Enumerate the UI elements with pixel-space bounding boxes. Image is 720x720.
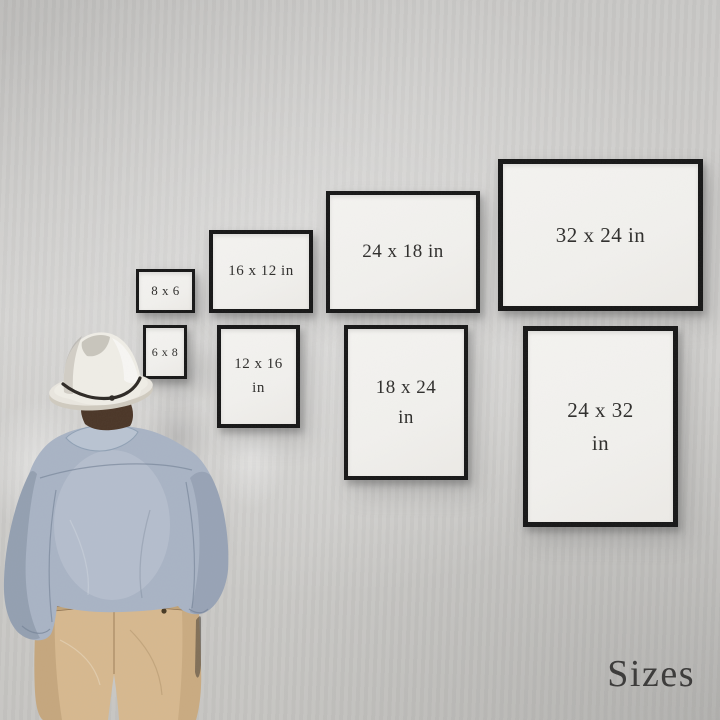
fedora-hat — [48, 332, 155, 414]
frame-size-label: 24 x 32 in — [567, 394, 634, 459]
hat-band-knot — [109, 395, 115, 401]
gallery-wall-scene: 8 x 6 16 x 12 in 24 x 18 in 32 x 24 in 6… — [0, 0, 720, 720]
sizes-caption: Sizes — [607, 652, 695, 696]
frame-24x18: 24 x 18 in — [326, 191, 480, 313]
pocket-button — [161, 608, 166, 613]
hip-shadow — [195, 616, 201, 677]
frame-size-label: 16 x 12 in — [228, 260, 293, 283]
frame-32x24: 32 x 24 in — [498, 159, 703, 311]
frame-18x24: 18 x 24 in — [344, 325, 468, 480]
man-figure — [0, 320, 242, 720]
frame-8x6: 8 x 6 — [136, 269, 195, 313]
shirt-highlight — [54, 450, 170, 600]
frame-size-label: 18 x 24 in — [376, 373, 437, 432]
frame-size-label: 24 x 18 in — [362, 237, 444, 266]
frame-size-label: 8 x 6 — [151, 281, 180, 301]
frame-24x32: 24 x 32 in — [523, 326, 678, 527]
frame-size-label: 32 x 24 in — [556, 219, 646, 252]
shirt — [4, 425, 228, 640]
frame-16x12: 16 x 12 in — [209, 230, 313, 313]
